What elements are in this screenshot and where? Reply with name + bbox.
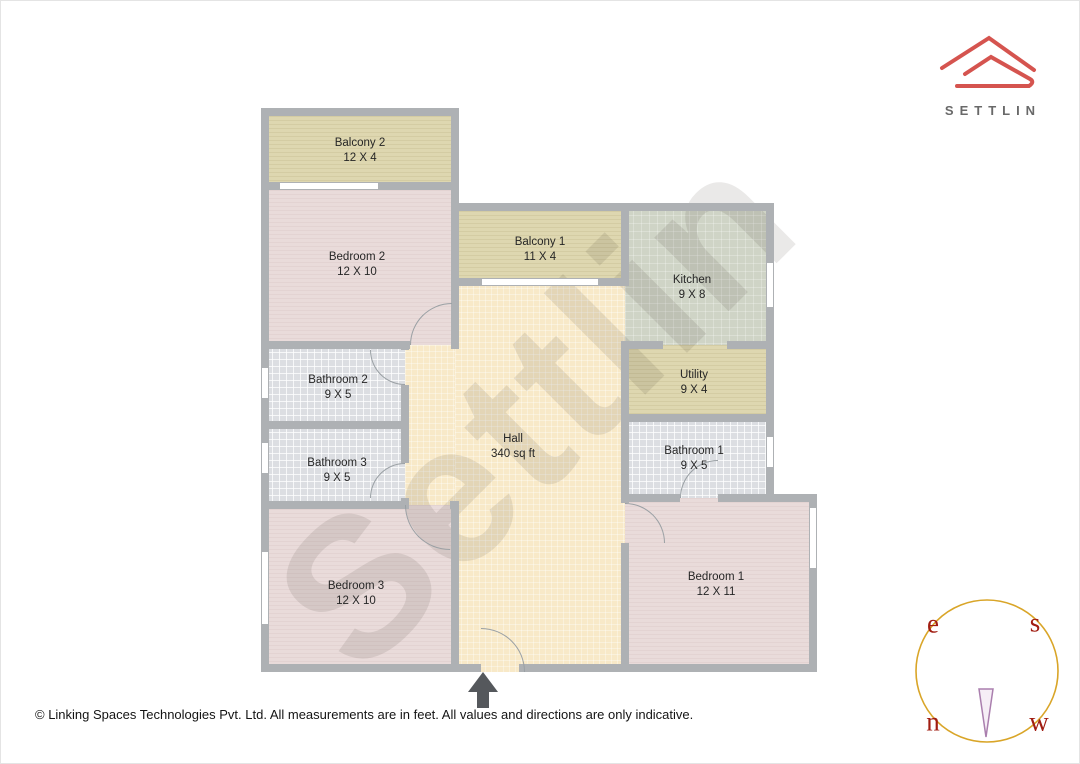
wall-segment (621, 341, 629, 494)
room-name: Bathroom 1 (664, 444, 723, 459)
window-bedroom3 (261, 552, 269, 624)
room-dims: 340 sq ft (491, 447, 535, 462)
settlin-roof-icon (935, 30, 1045, 92)
room-hall-floor (455, 282, 625, 672)
room-label-bathroom-2: Bathroom 2 9 X 5 (308, 373, 367, 403)
compass-rose: e s n w (913, 596, 1063, 746)
room-dims: 9 X 5 (308, 388, 367, 403)
room-dims: 11 X 4 (515, 250, 566, 265)
entrance-arrow-icon (465, 670, 501, 710)
room-label-hall: Hall 340 sq ft (491, 432, 535, 462)
room-name: Utility (680, 368, 708, 383)
room-label-utility: Utility 9 X 4 (680, 368, 708, 398)
wall-segment (451, 108, 459, 349)
copyright-disclaimer: © Linking Spaces Technologies Pvt. Ltd. … (35, 707, 693, 722)
room-label-kitchen: Kitchen 9 X 8 (673, 273, 711, 303)
window-bathroom1 (766, 437, 774, 467)
room-name: Bedroom 1 (688, 570, 744, 585)
room-dims: 9 X 5 (307, 471, 366, 486)
window-balcony1-hall (482, 278, 598, 286)
wall-segment (621, 203, 629, 286)
floorplan-page: Settlin Balcony 2 12 X 4 Bedro (0, 0, 1080, 764)
settlin-logo-text: SETTLIN (928, 103, 1052, 118)
window-bathroom2 (261, 368, 269, 398)
room-label-bedroom-1: Bedroom 1 12 X 11 (688, 570, 744, 600)
wall-segment (621, 414, 774, 422)
wall-segment (261, 108, 459, 116)
room-dims: 9 X 4 (680, 383, 708, 398)
wall-segment (451, 501, 459, 672)
wall-segment (261, 501, 405, 509)
compass-east-label: e (927, 609, 939, 640)
window-bathroom3 (261, 443, 269, 473)
room-dims: 9 X 8 (673, 288, 711, 303)
wall-segment (261, 341, 410, 349)
room-hall-corridor-floor (405, 345, 455, 505)
room-label-bedroom-3: Bedroom 3 12 X 10 (328, 579, 384, 609)
room-label-bedroom-2: Bedroom 2 12 X 10 (329, 250, 385, 280)
wall-segment (621, 494, 680, 502)
room-label-bathroom-1: Bathroom 1 9 X 5 (664, 444, 723, 474)
window-kitchen (766, 263, 774, 307)
room-name: Balcony 2 (335, 136, 386, 151)
room-dims: 9 X 5 (664, 459, 723, 474)
room-dims: 12 X 11 (688, 585, 744, 600)
room-dims: 12 X 10 (329, 265, 385, 280)
room-name: Bathroom 2 (308, 373, 367, 388)
wall-segment (261, 421, 409, 429)
room-dims: 12 X 10 (328, 594, 384, 609)
settlin-logo: SETTLIN (928, 30, 1052, 118)
wall-segment (401, 341, 409, 350)
room-name: Kitchen (673, 273, 711, 288)
room-label-bathroom-3: Bathroom 3 9 X 5 (307, 456, 366, 486)
room-label-balcony-1: Balcony 1 11 X 4 (515, 235, 566, 265)
room-dims: 12 X 4 (335, 151, 386, 166)
window-bedroom1 (809, 508, 817, 568)
compass-west-label: w (1029, 707, 1049, 738)
wall-segment (451, 203, 774, 211)
room-name: Bedroom 3 (328, 579, 384, 594)
wall-segment (261, 664, 481, 672)
room-name: Balcony 1 (515, 235, 566, 250)
room-label-balcony-2: Balcony 2 12 X 4 (335, 136, 386, 166)
room-name: Hall (491, 432, 535, 447)
compass-north-label: n (926, 707, 940, 738)
compass-south-label: s (1030, 608, 1041, 639)
wall-segment (519, 664, 817, 672)
window-balcony2-bedroom2 (280, 182, 378, 190)
wall-segment (621, 494, 629, 503)
wall-segment (401, 385, 409, 463)
wall-segment (621, 543, 629, 672)
room-name: Bathroom 3 (307, 456, 366, 471)
room-name: Bedroom 2 (329, 250, 385, 265)
